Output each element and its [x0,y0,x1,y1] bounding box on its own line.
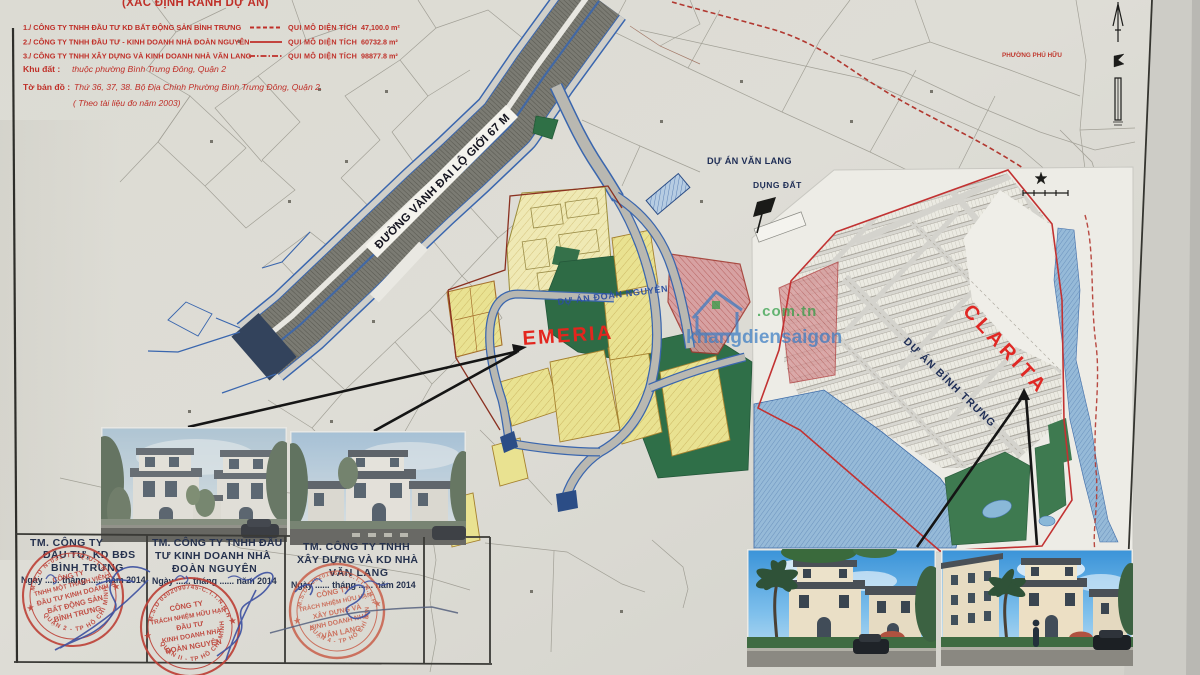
svg-text:XÂY DỰNG VÀ KD NHÀ: XÂY DỰNG VÀ KD NHÀ [297,553,418,566]
svg-text:PHƯỜNG PHÚ HỮU: PHƯỜNG PHÚ HỮU [1002,50,1062,59]
svg-text:QUI MÔ DIỆN TÍCH: QUI MÔ DIỆN TÍCH [288,38,357,47]
svg-text:Thứ 36, 37, 38. Bộ Địa Chính P: Thứ 36, 37, 38. Bộ Địa Chính Phường Bình… [74,82,322,92]
svg-text:khangdiensaigon: khangdiensaigon [686,327,842,348]
svg-text:1./ CÔNG TY TNHH ĐẦU TƯ KD BẤT: 1./ CÔNG TY TNHH ĐẦU TƯ KD BẤT ĐỘNG SẢN … [23,22,241,32]
svg-text:QUI MÔ DIỆN TÍCH: QUI MÔ DIỆN TÍCH [288,23,357,32]
svg-text:TM. CÔNG TY TNHH ĐẦU: TM. CÔNG TY TNHH ĐẦU [152,536,282,549]
svg-text:QUI MÔ DIỆN TÍCH: QUI MÔ DIỆN TÍCH [288,52,357,61]
svg-text:Tờ bản đồ :: Tờ bản đồ : [23,82,70,92]
svg-text:.com.tn: .com.tn [757,303,817,320]
svg-text:TM. CÔNG TY TNHH: TM. CÔNG TY TNHH [303,540,410,553]
svg-text:(XÁC ĐỊNH RANH DỰ ÁN): (XÁC ĐỊNH RANH DỰ ÁN) [122,0,269,9]
svg-text:Khu đất :: Khu đất : [23,64,60,74]
svg-text:98877.8 m²: 98877.8 m² [361,52,398,61]
svg-text:( Theo tài liệu đo năm 2003): ( Theo tài liệu đo năm 2003) [73,98,181,108]
svg-text:2./ CÔNG TY TNHH ĐẦU TƯ - KINH: 2./ CÔNG TY TNHH ĐẦU TƯ - KINH DOANH NHÀ… [23,37,250,47]
svg-text:47,100.0 m²: 47,100.0 m² [361,23,400,32]
svg-text:3./ CÔNG TY TNHH XÂY DỰNG VÀ K: 3./ CÔNG TY TNHH XÂY DỰNG VÀ KINH DOANH … [23,52,252,61]
svg-text:60732.8 m²: 60732.8 m² [361,38,398,47]
svg-text:thuộc phường Bình Trưng Đông,: thuộc phường Bình Trưng Đông, Quận 2 [72,64,226,74]
svg-text:DỤNG ĐẤT: DỤNG ĐẤT [753,180,802,190]
svg-text:ĐOÀN NGUYÊN: ĐOÀN NGUYÊN [172,562,257,575]
svg-text:TƯ KINH DOANH NHÀ: TƯ KINH DOANH NHÀ [155,549,271,562]
svg-text:DỰ ÁN VĂN LANG: DỰ ÁN VĂN LANG [707,155,792,166]
